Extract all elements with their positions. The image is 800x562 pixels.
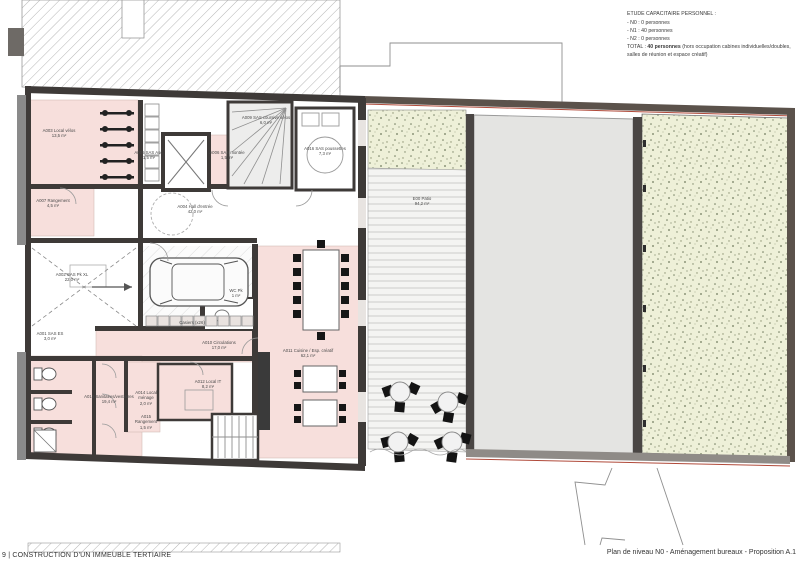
capacity-note-line-n2: - N2 : 0 personnes <box>627 35 797 43</box>
floor-plan-drawing <box>0 0 800 562</box>
floor-plan-sheet: ETUDE CAPACITAIRE PERSONNEL : - N0 : 0 p… <box>0 0 800 562</box>
capacity-note: ETUDE CAPACITAIRE PERSONNEL : - N0 : 0 p… <box>627 10 797 59</box>
capacity-note-title: ETUDE CAPACITAIRE PERSONNEL : <box>627 10 797 18</box>
sheet-title: 9 | CONSTRUCTION D'UN IMMEUBLE TERTIAIRE <box>2 552 171 559</box>
capacity-note-line-n0: - N0 : 0 personnes <box>627 19 797 27</box>
capacity-note-total: TOTAL : 40 personnes (hors occupation ca… <box>627 43 797 59</box>
capacity-note-line-n1: - N1 : 40 personnes <box>627 27 797 35</box>
plan-caption: Plan de niveau N0 - Aménagement bureaux … <box>607 549 796 556</box>
